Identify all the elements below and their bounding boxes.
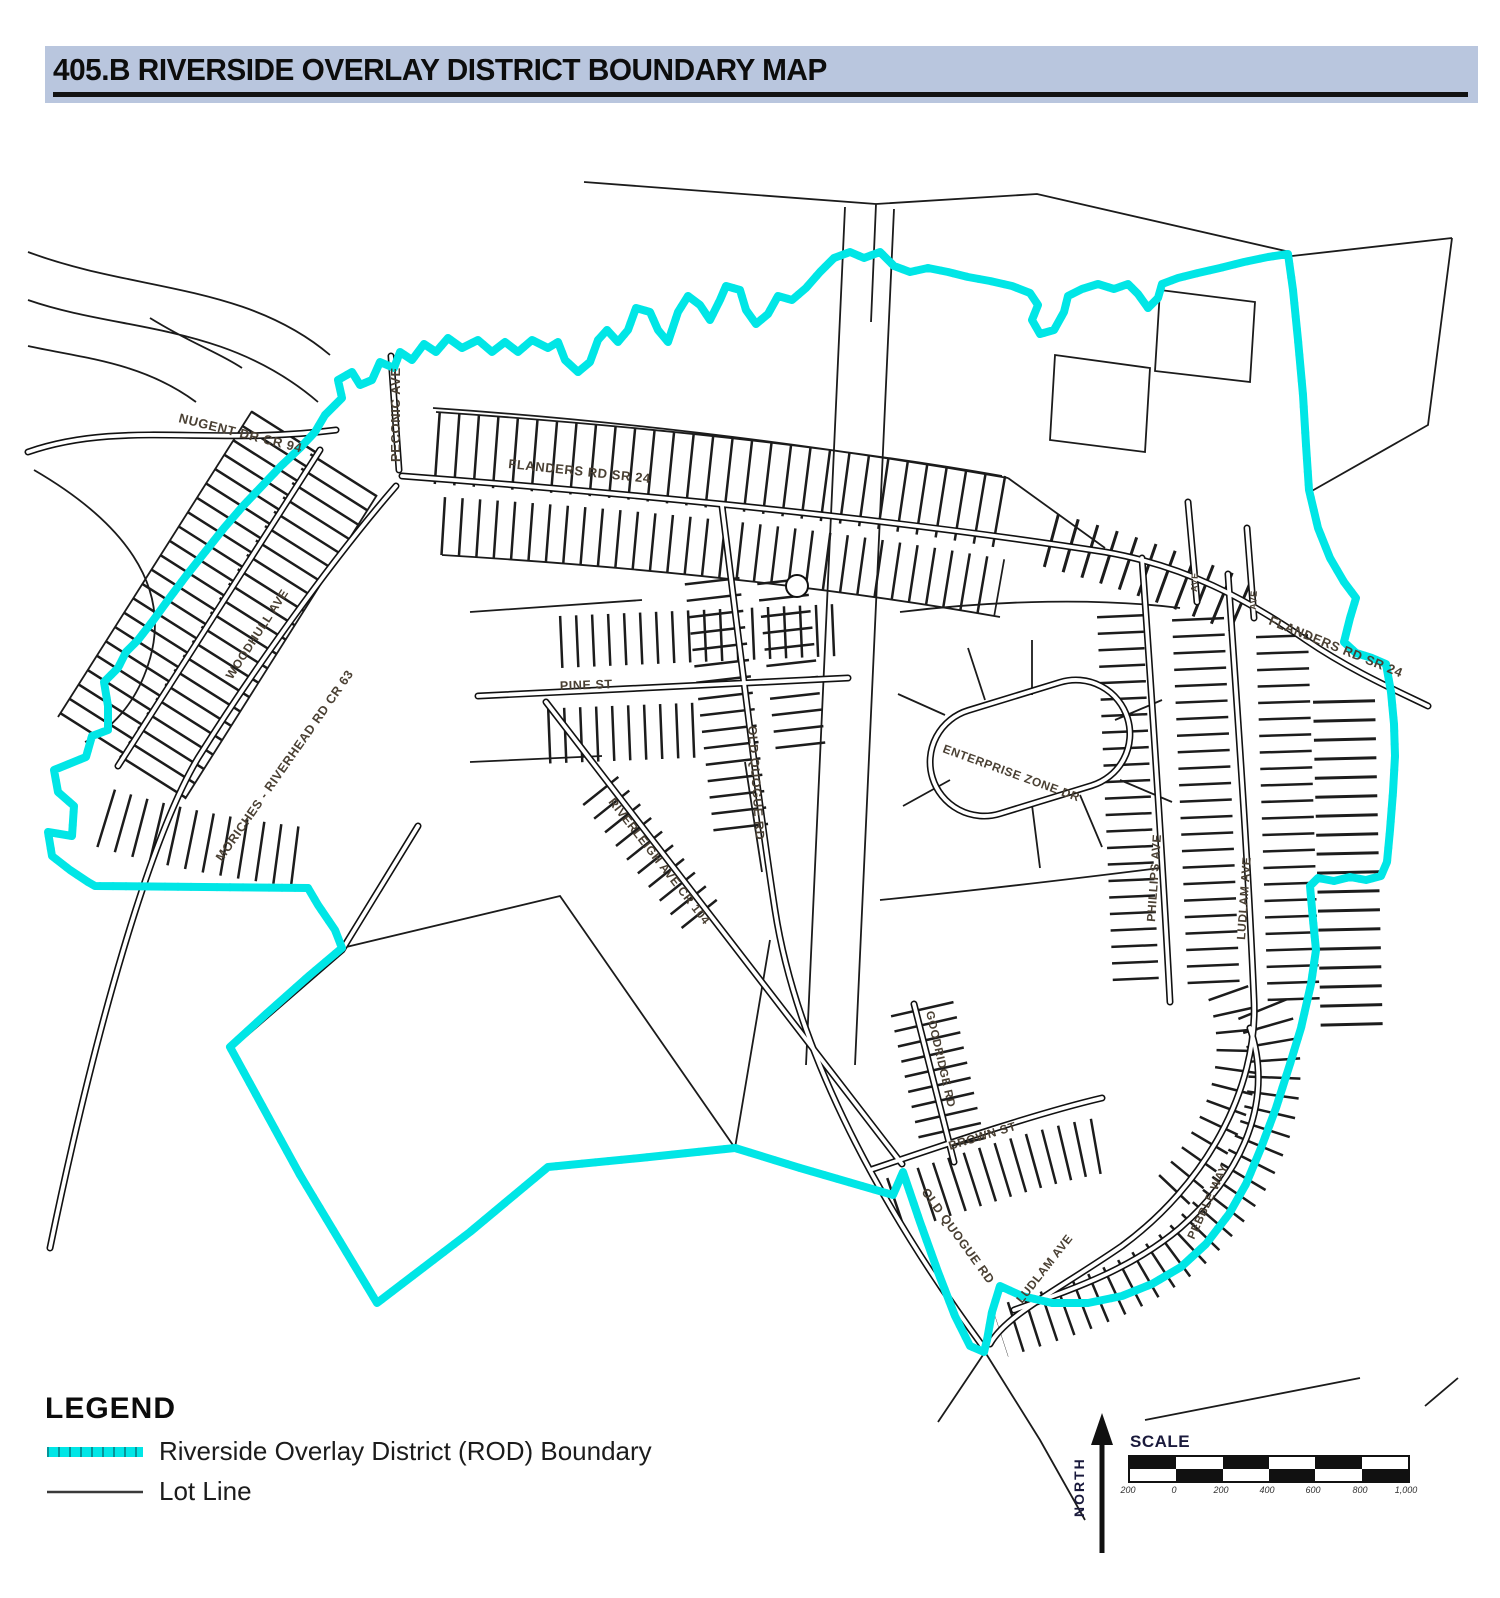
legend-heading: LEGEND [45, 1392, 652, 1426]
scale-tick: 400 [1259, 1485, 1274, 1495]
scale-tick: 200 [1120, 1485, 1135, 1495]
parcels-phillips-west [1120, 615, 1136, 985]
parcels-sw-lower [105, 818, 310, 858]
cul-de-sac-circle [786, 575, 808, 597]
scale-tick: 1,000 [1395, 1485, 1418, 1495]
street-label-riverleigh: RIVERLEIGH AVE CR 104 [606, 795, 713, 927]
scale-caption: SCALE [1130, 1432, 1410, 1452]
parcels-ludlam-east [1282, 635, 1294, 1010]
scale-bar: SCALE 200 0 200 400 600 800 1,000 [1128, 1432, 1410, 1499]
legend: LEGEND Riverside Overlay District (ROD) … [45, 1392, 652, 1516]
north-arrow: NORTH [1072, 1405, 1120, 1560]
street-label-small-ne-1: AVE [1189, 572, 1200, 592]
title-bar: 405.B RIVERSIDE OVERLAY DISTRICT BOUNDAR… [45, 46, 1478, 103]
street-label-small-ne-2: AVE [1248, 590, 1259, 610]
north-label: NORTH [1072, 1457, 1087, 1517]
legend-label-lot-line: Lot Line [159, 1476, 252, 1507]
street-label-brown: BROWN ST [947, 1119, 1018, 1153]
north-arrow-graphic: NORTH [1072, 1405, 1120, 1555]
street-label-enterprise-zone: ENTERPRISE ZONE DR [941, 742, 1082, 805]
parcels-far-east [1344, 700, 1352, 1040]
parcels-phillips-ludlam [1198, 618, 1214, 992]
scale-tick: 0 [1171, 1485, 1176, 1495]
page: NUGENT DR CR 94 PECONIC AVE FLANDERS RD … [0, 0, 1500, 1598]
scale-ticks: 200 0 200 400 600 800 1,000 [1128, 1485, 1406, 1499]
lot-line-swatch [45, 1483, 145, 1501]
scale-bar-graphic [1128, 1455, 1410, 1483]
district-boundary-map: NUGENT DR CR 94 PECONIC AVE FLANDERS RD … [0, 0, 1500, 1598]
page-title: 405.B RIVERSIDE OVERLAY DISTRICT BOUNDAR… [53, 52, 1411, 88]
scale-tick: 600 [1305, 1485, 1320, 1495]
legend-item-lot-line: Lot Line [45, 1476, 652, 1507]
rod-boundary-swatch [45, 1443, 145, 1461]
scale-tick: 200 [1213, 1485, 1228, 1495]
legend-label-rod: Riverside Overlay District (ROD) Boundar… [159, 1436, 652, 1467]
north-arrowhead [1091, 1413, 1113, 1445]
parcels-woodhull-nw [92, 432, 286, 738]
street-label-peconic: PECONIC AVE [388, 367, 403, 462]
legend-item-rod: Riverside Overlay District (ROD) Boundar… [45, 1436, 652, 1467]
street-label-pine: PINE ST [560, 677, 613, 693]
street-label-flanders-west: FLANDERS RD SR 24 [508, 456, 652, 486]
scale-tick: 800 [1352, 1485, 1367, 1495]
